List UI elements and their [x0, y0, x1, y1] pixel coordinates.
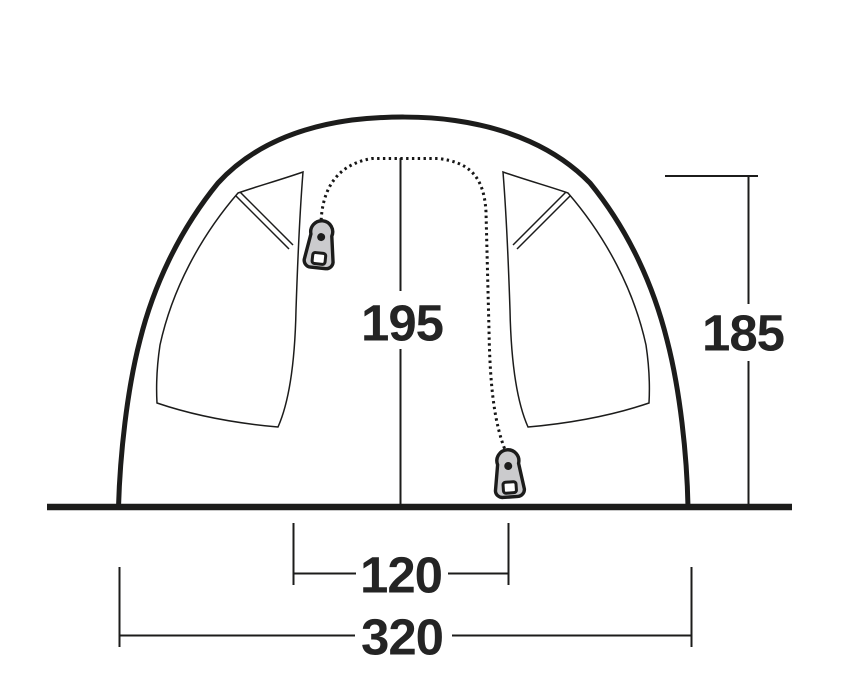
reflection-line	[513, 192, 566, 245]
zipper-pull-icon	[493, 449, 525, 498]
inner-height-label: 195	[361, 298, 443, 349]
base-width-label: 320	[361, 612, 443, 663]
door-width-label: 120	[360, 550, 442, 601]
reflection-line	[240, 192, 293, 245]
reflection-line	[517, 196, 570, 249]
zipper-pull-hole	[312, 252, 326, 264]
left-window	[157, 172, 303, 427]
reflection-line	[236, 196, 289, 249]
zipper-pull-hole	[503, 482, 517, 494]
left-window-reflection-lines	[236, 192, 293, 249]
tent-dimension-diagram: 195 185 120 320	[0, 0, 852, 700]
zipper-pull-icon	[303, 219, 337, 269]
right-window-reflection-lines	[513, 192, 570, 249]
side-height-label: 185	[702, 308, 784, 359]
right-window	[503, 172, 649, 427]
